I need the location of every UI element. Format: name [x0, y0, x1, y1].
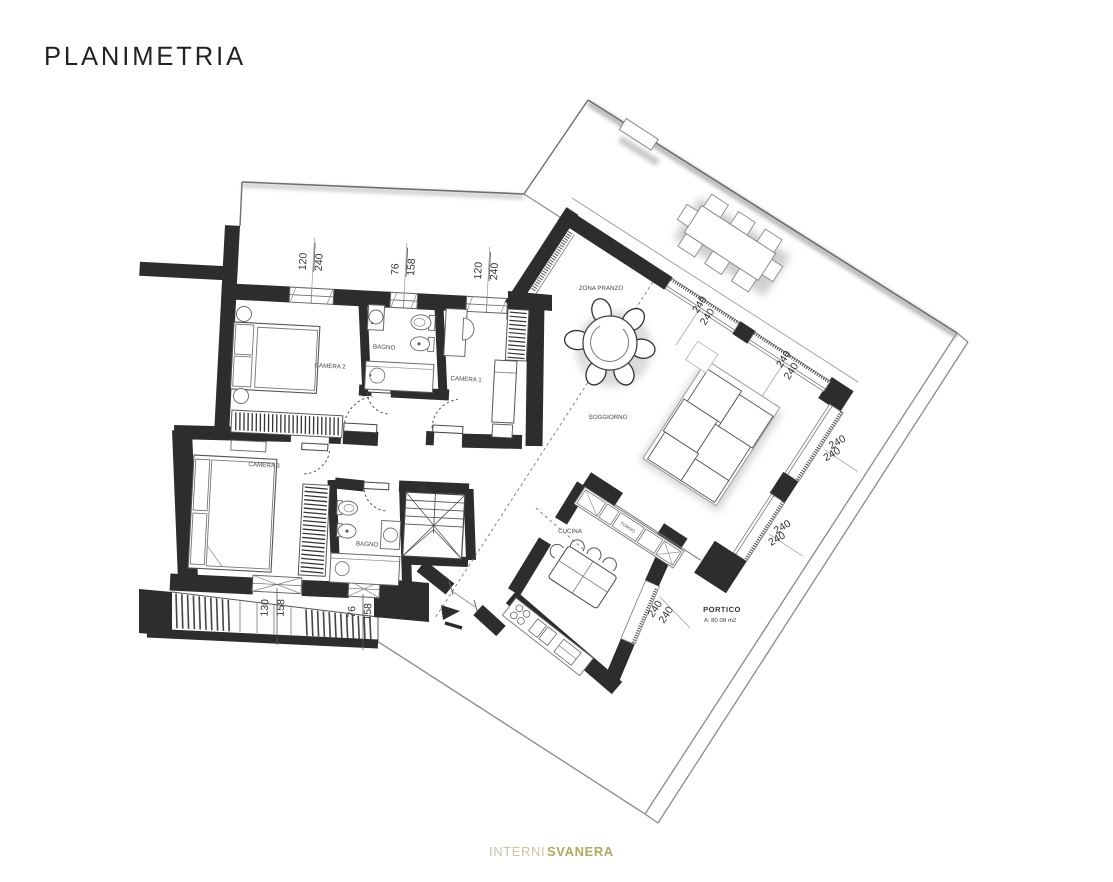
svg-text:120: 120	[297, 252, 310, 270]
svg-text:SVANERA: SVANERA	[547, 844, 614, 859]
svg-text:76: 76	[389, 263, 402, 275]
svg-text:PLANIMETRIA: PLANIMETRIA	[44, 41, 246, 71]
svg-text:76: 76	[346, 606, 359, 618]
svg-text:ZONA PRANZO: ZONA PRANZO	[579, 285, 624, 292]
svg-text:158: 158	[275, 599, 288, 617]
svg-text:BAGNO: BAGNO	[356, 540, 379, 548]
svg-text:120: 120	[472, 261, 485, 279]
svg-text:130: 130	[259, 599, 272, 617]
svg-text:SOGGIORNO: SOGGIORNO	[589, 414, 628, 421]
svg-text:CUCINA: CUCINA	[558, 528, 583, 535]
svg-text:PORTICO: PORTICO	[703, 605, 741, 614]
svg-text:A: 80.08 m2: A: 80.08 m2	[704, 617, 737, 624]
svg-text:INTERNI: INTERNI	[489, 844, 545, 859]
svg-text:BAGNO: BAGNO	[373, 343, 396, 351]
svg-text:158: 158	[362, 603, 375, 621]
